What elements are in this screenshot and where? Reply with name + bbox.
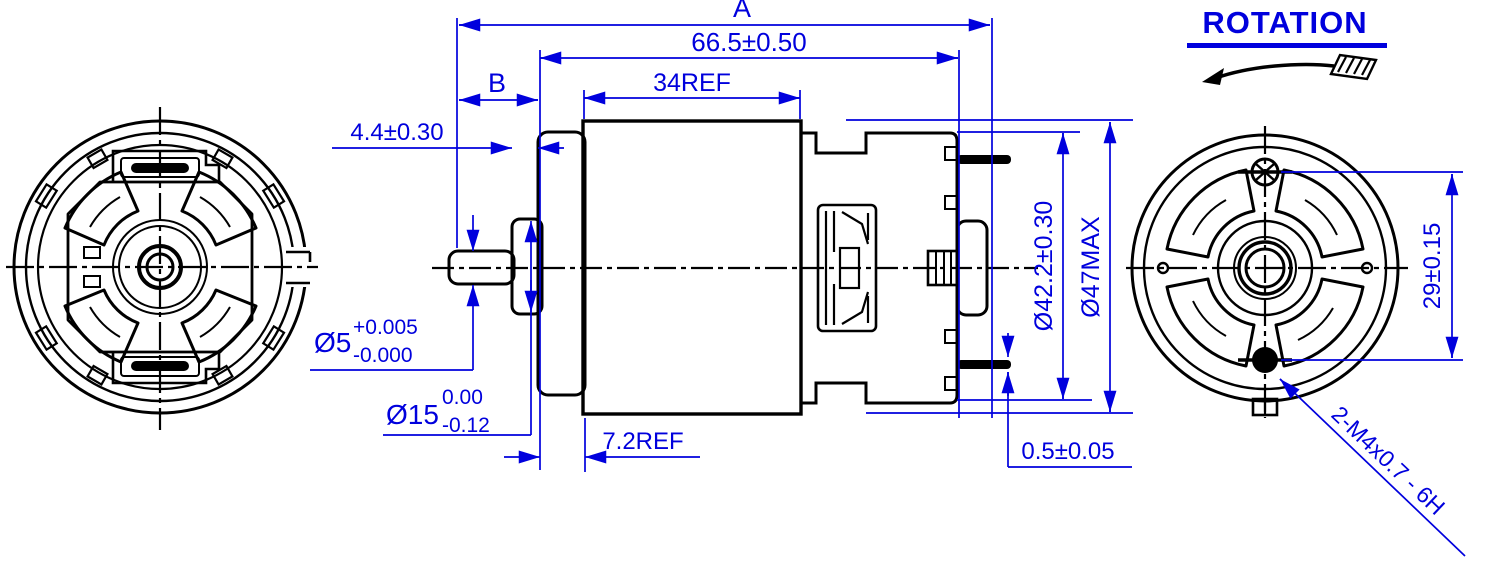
shaft-tol-upper: +0.005 [353,316,418,339]
motor-engineering-drawing: ROTATION A [0,0,1490,568]
dim-overall-length: A [459,0,990,25]
front-view [6,107,318,430]
dim-cap-diameter: Ø42.2±0.30 [1030,133,1063,399]
dim-boss-height-label: 4.4±0.30 [350,119,443,146]
dim-flange-thickness-label: 7.2REF [602,428,683,455]
dim-mounting-thread-label: 2-M4x0.7 - 6H [1327,401,1451,520]
dim-body-length-label: 66.5±0.50 [691,27,806,57]
dim-hole-spacing-label: 29±0.15 [1419,223,1446,310]
rotation-indicator: ROTATION [1187,5,1387,85]
dim-shaft-extension: B [459,68,538,100]
dim-overall-length-label: A [733,0,751,23]
dim-flange-thickness: 7.2REF [504,428,700,457]
drawing-sheet: ROTATION A [0,0,1490,568]
front-flange [538,132,585,395]
side-view [432,121,1038,414]
shaft-tol-lower: -0.000 [353,344,413,367]
dim-body-length: 66.5±0.50 [540,27,958,58]
rotation-arrow-icon [1202,55,1376,85]
rotation-underline [1187,43,1387,48]
dim-can-length-label: 34REF [653,69,731,97]
boss-tol-upper: 0.00 [442,386,483,409]
brush-housing-bottom [113,351,219,383]
terminal-top [957,155,1011,164]
dim-terminal-thickness-label: 0.5±0.05 [1021,438,1114,465]
front-centerlines [6,107,318,430]
rear-view [1126,126,1408,418]
dim-mounting-thread: 2-M4x0.7 - 6H [1280,379,1465,556]
dim-body-diameter-label: Ø47MAX [1077,216,1105,318]
dim-can-length: 34REF [584,69,800,98]
dim-cap-diameter-label: Ø42.2±0.30 [1030,201,1058,331]
boss-tol-lower: -0.12 [442,414,490,437]
rotation-label: ROTATION [1202,5,1367,40]
terminal-bottom [957,360,1011,369]
dim-boss-diameter-label: Ø15 [386,399,439,430]
dimensions: A 66.5±0.50 B 34REF 4.4±0.30 [310,0,1465,556]
dim-shaft-diameter: Ø5 +0.005 -0.000 [310,215,473,370]
brush-housing-top [113,151,219,183]
dim-shaft-diameter-label: Ø5 [314,327,351,358]
dim-body-diameter: Ø47MAX [1077,122,1110,412]
dim-boss-height: 4.4±0.30 [332,119,564,148]
dim-shaft-extension-label: B [488,68,506,98]
